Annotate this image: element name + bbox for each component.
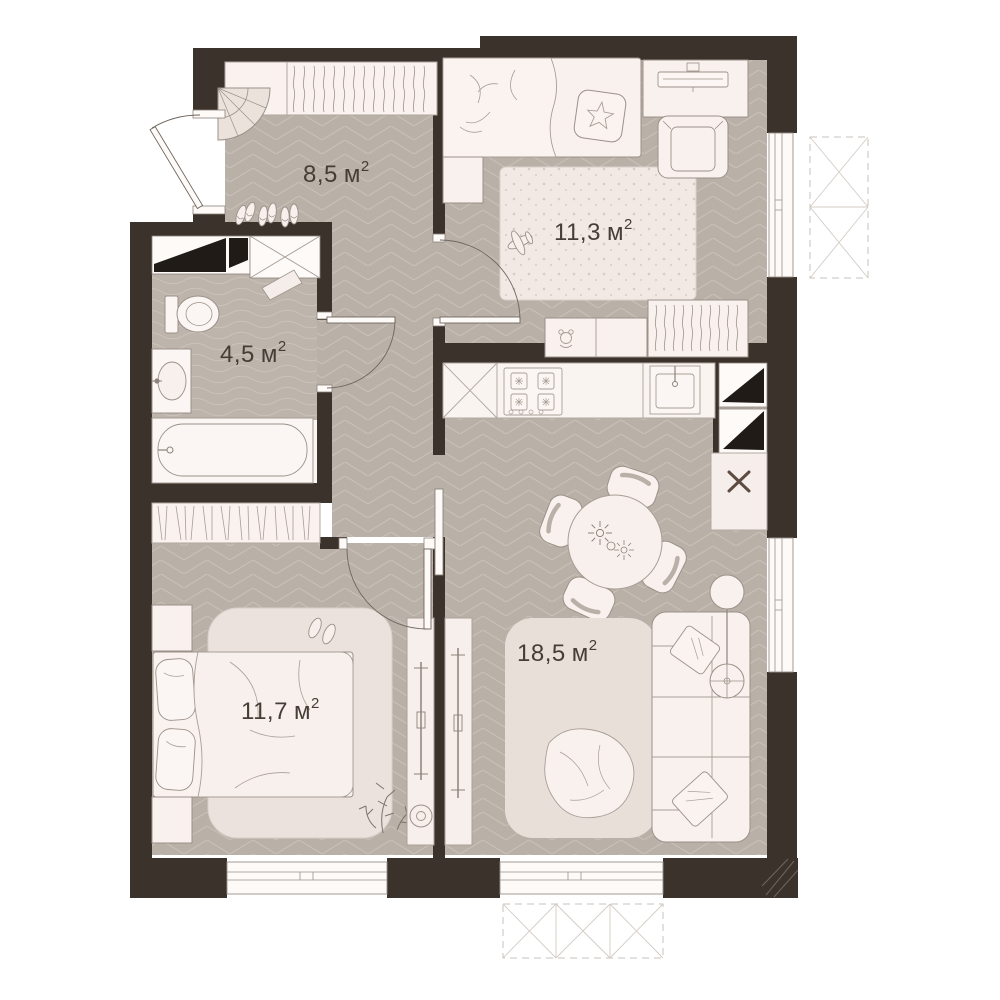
wall-bath-bottom [130, 483, 332, 503]
nightstand-bottom [152, 797, 192, 843]
star-pillow [573, 89, 627, 143]
flower-pot [410, 805, 432, 827]
tv-console-living [445, 618, 472, 845]
kids-desk [643, 60, 748, 117]
wall-bottom-a [130, 858, 227, 898]
kids-nightstand [443, 157, 483, 203]
nightstand-top [152, 605, 192, 651]
wall-top-kids [480, 36, 797, 60]
kids-wardrobe [648, 300, 748, 357]
master-wardrobe [152, 503, 320, 543]
wall-bath-top [152, 222, 332, 236]
sofa [652, 612, 750, 842]
toilet [165, 296, 219, 333]
dining-table [568, 495, 662, 589]
wall-bath-right-lower [317, 385, 332, 487]
kids-dresser [545, 318, 647, 357]
living-room-sliding-door [435, 489, 443, 575]
floor-plan-drawing [0, 0, 1000, 1000]
stove [504, 368, 562, 415]
wall-bottom-b [387, 858, 500, 898]
window-bedroom-bottom [227, 862, 387, 894]
window-kids-right [769, 133, 793, 277]
wall-left-exterior [130, 222, 152, 860]
ac-basket-bottom [503, 904, 663, 958]
ac-basket-right [810, 137, 868, 278]
window-living-right [769, 538, 793, 672]
corridor-floor [332, 222, 433, 537]
wall-top-hallway [193, 48, 480, 62]
sink [152, 349, 191, 413]
room-label-kids-bedroom: 11,3м2 [554, 218, 633, 247]
room-label-bathroom: 4,5м2 [220, 340, 287, 369]
wall-right-upper [767, 36, 797, 133]
wall-right-mid [767, 277, 797, 538]
shaft-cross-box [711, 453, 767, 530]
kitchen-counter [443, 363, 715, 418]
entrance-door [150, 110, 225, 214]
floor-plan-page: 8,5м2 11,3м2 4,5м2 11,7м2 18,5м2 [0, 0, 1000, 1000]
room-label-hallway: 8,5м2 [303, 160, 370, 189]
wall-bottom-c [663, 858, 798, 898]
wall-bedroom-living-divider [433, 537, 445, 860]
room-label-master-bedroom: 11,7м2 [241, 697, 320, 726]
kitchen-sink [650, 366, 700, 414]
bathtub [152, 418, 313, 483]
room-label-kitchen-living: 18,5м2 [517, 639, 598, 668]
window-living-bottom [500, 862, 663, 894]
kids-bed [443, 58, 641, 157]
wall-right-lower [767, 672, 797, 858]
kids-armchair [658, 116, 728, 178]
